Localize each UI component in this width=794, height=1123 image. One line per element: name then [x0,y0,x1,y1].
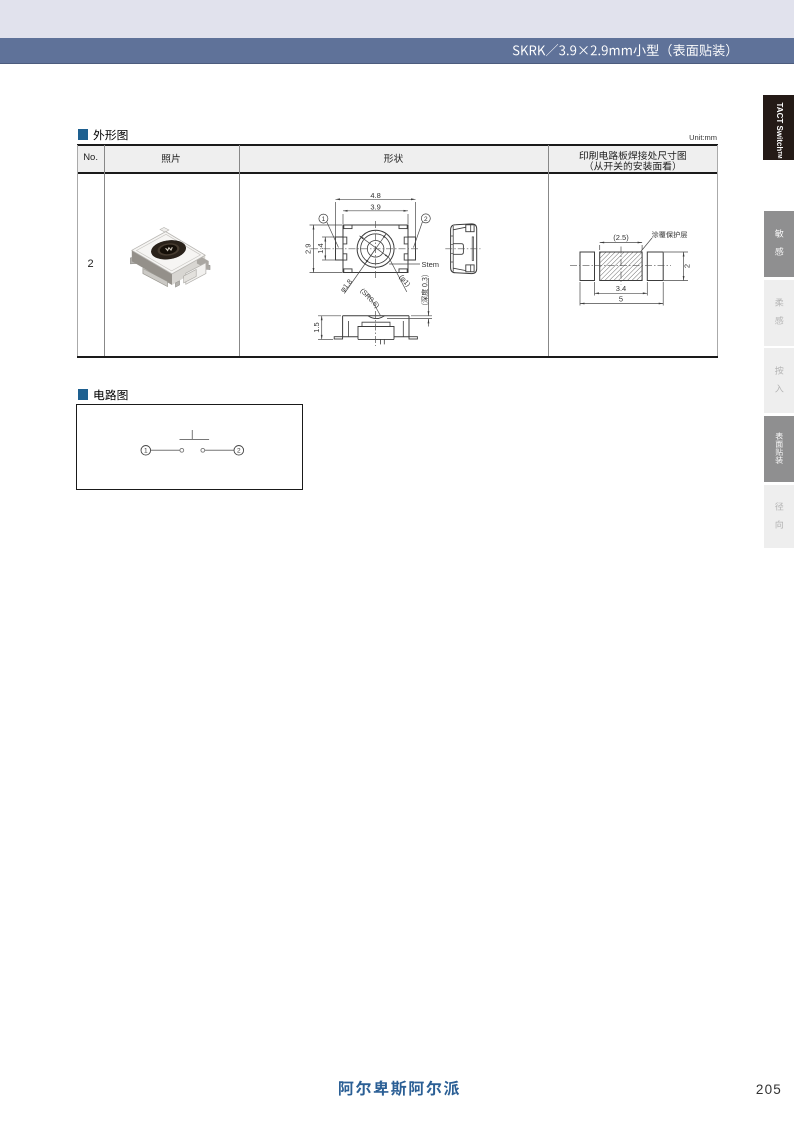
svg-text:1: 1 [144,448,148,455]
svg-text:4.8: 4.8 [370,191,380,200]
svg-text:TACT SwitchTM: TACT SwitchTM [775,102,784,158]
svg-text:2: 2 [237,448,241,455]
svg-text:1.4: 1.4 [316,243,325,253]
svg-text:1: 1 [322,216,326,223]
svg-text:Stem: Stem [422,260,440,269]
svg-text:(SR0.6): (SR0.6) [358,288,380,310]
svg-text:3.9: 3.9 [370,203,380,212]
svg-text:(φ1): (φ1) [397,274,411,289]
svg-text:2: 2 [683,264,692,268]
svg-text:(2.5): (2.5) [613,233,629,242]
svg-text:φ1.8: φ1.8 [339,278,354,294]
svg-text:2: 2 [424,216,428,223]
svg-text:5: 5 [619,294,623,303]
svg-text:1.5: 1.5 [312,322,321,332]
svg-text:3.4: 3.4 [616,284,626,293]
svg-text:2.9: 2.9 [304,244,313,254]
